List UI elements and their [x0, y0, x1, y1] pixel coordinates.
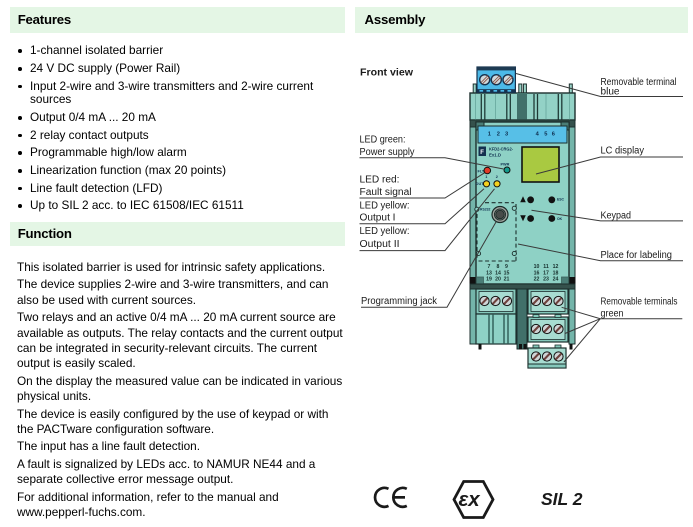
svg-text:101112: 101112: [534, 264, 559, 270]
svg-text:OUT: OUT: [476, 182, 485, 186]
svg-text:Output II: Output II: [360, 239, 400, 250]
svg-text:Power supply: Power supply: [360, 147, 415, 158]
svg-text:εx: εx: [459, 488, 482, 511]
svg-text:F: F: [480, 150, 484, 156]
svg-text:LC display: LC display: [601, 145, 645, 156]
svg-text:KFD2-CRG2-: KFD2-CRG2-: [489, 147, 513, 152]
svg-text:1: 1: [485, 175, 487, 179]
svg-text:SIL 2: SIL 2: [541, 489, 583, 509]
svg-text:Output I: Output I: [360, 213, 396, 224]
svg-text:PWR: PWR: [501, 162, 510, 166]
svg-text:Front view: Front view: [360, 67, 414, 79]
svg-text:123: 123: [488, 131, 508, 137]
svg-text:Programming jack: Programming jack: [361, 296, 438, 307]
svg-text:192021: 192021: [486, 277, 509, 283]
svg-text:222324: 222324: [534, 277, 559, 283]
svg-text:161718: 161718: [534, 270, 559, 276]
svg-text:ESC: ESC: [557, 198, 565, 202]
svg-text:Ex1.D: Ex1.D: [489, 153, 501, 158]
svg-text:LED green:: LED green:: [360, 134, 406, 145]
svg-text:LED yellow:: LED yellow:: [360, 226, 410, 237]
svg-text:Keypad: Keypad: [601, 210, 632, 221]
svg-text:RS232: RS232: [480, 207, 490, 211]
svg-text:2: 2: [496, 175, 498, 179]
svg-text:131415: 131415: [486, 270, 509, 276]
svg-text:Place for labeling: Place for labeling: [601, 250, 673, 261]
svg-text:green: green: [601, 309, 624, 320]
svg-text:Fault signal: Fault signal: [360, 187, 412, 198]
svg-text:456: 456: [536, 131, 555, 137]
svg-text:LED yellow:: LED yellow:: [360, 201, 410, 212]
svg-text:OK: OK: [557, 217, 563, 221]
svg-text:Removable terminals: Removable terminals: [601, 297, 678, 308]
svg-text:LED red:: LED red:: [360, 175, 400, 186]
